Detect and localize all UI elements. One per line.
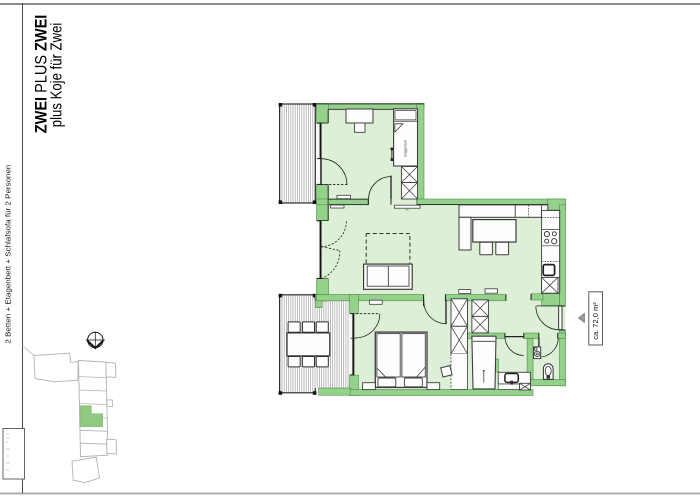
svg-text:plus Koje für Zwei: plus Koje für Zwei	[48, 23, 65, 128]
svg-text:Etagenbett: Etagenbett	[404, 140, 408, 156]
svg-text:2 Betten + Etagenbett + Schlaf: 2 Betten + Etagenbett + Schlafsofa für 2…	[3, 165, 12, 344]
svg-text:ca. 72,0 m²: ca. 72,0 m²	[591, 302, 600, 340]
